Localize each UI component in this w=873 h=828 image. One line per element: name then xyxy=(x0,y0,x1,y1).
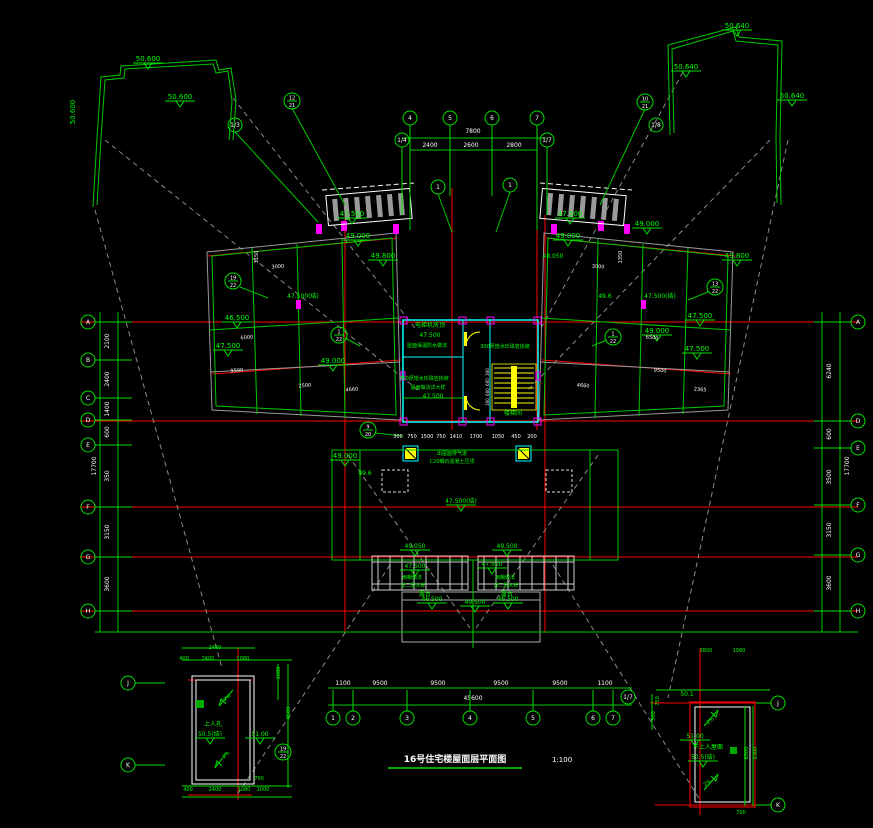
annotation-text: 300厚憎水珍珠岩找坡 xyxy=(480,343,530,350)
bubble-label: 9 xyxy=(366,425,369,431)
annotation-text: 3000 xyxy=(591,263,604,270)
annotation-text: 51.00 xyxy=(686,733,703,740)
annotation-text: 600 xyxy=(104,426,111,438)
annotation-text: 750 xyxy=(436,434,446,440)
bubble-label: 1/7 xyxy=(542,137,552,144)
annotation-text: 2800 xyxy=(700,648,713,654)
bubble-label: 1 xyxy=(611,332,614,338)
annotation-text: 2400 xyxy=(422,142,437,149)
annotation-text: 50.600 xyxy=(69,100,77,125)
annotation-text: 3150 xyxy=(104,524,111,539)
bubble-label: G xyxy=(86,554,91,561)
annotation-text: 50.5(结) xyxy=(198,730,222,738)
bubble-label: C xyxy=(86,395,90,402)
annotation-text: 3600 xyxy=(826,575,833,590)
annotation-text: 47.500 xyxy=(423,393,444,400)
bubble-label: B xyxy=(86,357,90,364)
annotation-text: 屋面保温防水做法 xyxy=(407,342,447,349)
annotation-text: 46.500 xyxy=(225,314,250,322)
annotation-text: 350 xyxy=(104,470,111,482)
annotation-text: 1050 xyxy=(492,434,505,440)
annotation-text: 49.6 xyxy=(598,293,612,300)
annotation-text: 500 xyxy=(651,711,657,721)
annotation-text: 1100 xyxy=(335,680,350,687)
annotation-text: 1500 xyxy=(421,434,434,440)
annotation-text: 1410 xyxy=(450,434,463,440)
annotation-text: 47.500 xyxy=(688,312,713,320)
annotation-text: 600 xyxy=(485,378,490,386)
annotation-text: 50.600 xyxy=(136,55,161,63)
bubble-label: 13 xyxy=(712,282,718,288)
annotation-text: 3500 xyxy=(826,469,833,484)
annotation-text: 3150 xyxy=(254,251,260,264)
annotation-text: 49.000 xyxy=(635,220,660,228)
bubble-label: 22 xyxy=(336,337,342,343)
annotation-text: 9500 xyxy=(372,680,387,687)
annotation-text: C20细石混凝土压顶 xyxy=(430,458,475,465)
annotation-text: 47.500 xyxy=(558,210,583,218)
annotation-text: 9500 xyxy=(493,680,508,687)
annotation-text: 49.800 xyxy=(371,252,396,260)
bubble-label: 5 xyxy=(531,715,535,722)
bubble-label: 22 xyxy=(712,289,718,295)
annotation-text: 楼梯间 xyxy=(504,409,522,417)
annotation-text: 2500 xyxy=(298,382,311,389)
bubble-label: J xyxy=(126,680,129,687)
annotation-text: 详二层大样 xyxy=(493,582,518,589)
bubble-label: 4 xyxy=(468,715,472,722)
annotation-text: 详二层大样 xyxy=(400,582,425,589)
bubble-label: 5 xyxy=(448,115,452,122)
drawing-title: 16号住宅楼屋面层平面图 xyxy=(404,753,507,765)
bubble-label: 21 xyxy=(289,103,295,109)
bubble-label: 7 xyxy=(535,115,539,122)
bubble-label: E xyxy=(856,445,860,452)
bubble-label: 22 xyxy=(280,754,286,760)
annotation-text: 17700 xyxy=(844,456,851,475)
bubble-label: D xyxy=(86,417,91,424)
canvas-background xyxy=(0,0,873,828)
annotation-text: 50.600 xyxy=(168,93,193,101)
annotation-text: 6500 xyxy=(645,334,658,341)
bubble-label: 1/4 xyxy=(397,137,407,144)
annotation-text: 50.640 xyxy=(780,92,805,100)
annotation-text: 1080 xyxy=(238,787,251,793)
bubble-label: 3 xyxy=(405,715,409,722)
annotation-text: 6000 xyxy=(240,334,253,341)
bubble-label: 1/8 xyxy=(651,122,661,129)
bubble-label: 6 xyxy=(490,115,494,122)
annotation-text: 49.000 xyxy=(321,357,346,365)
annotation-text: 2600 xyxy=(463,142,478,149)
bubble-label: E xyxy=(86,442,90,449)
annotation-text: 49.000 xyxy=(556,232,581,240)
annotation-text: 2800 xyxy=(506,142,521,149)
annotation-text: 47.500(结) xyxy=(644,292,676,300)
annotation-text: 4660 xyxy=(345,386,358,393)
bubble-label: H xyxy=(86,608,91,615)
annotation-text: 3600 xyxy=(104,576,111,591)
bubble-label: 19 xyxy=(280,747,286,753)
annotation-text: 上人孔 xyxy=(204,720,222,728)
annotation-text: 48.050 xyxy=(543,253,564,260)
annotation-text: 50.5(结) xyxy=(691,753,715,761)
annotation-text: 400 xyxy=(179,656,189,662)
annotation-text: 600 xyxy=(485,388,490,396)
annotation-text: 200 xyxy=(527,434,537,440)
annotation-text: 4660 xyxy=(576,382,589,389)
annotation-text: 2400 xyxy=(209,787,222,793)
bubble-label: F xyxy=(856,502,860,509)
annotation-text: 电梯机房顶 xyxy=(415,321,445,329)
annotation-text: 49.000 xyxy=(333,452,358,460)
annotation-text: 600 xyxy=(826,428,833,440)
annotation-text: 47.500 xyxy=(685,345,710,353)
cad-canvas[interactable]: 50.60050.60050.60050.64050.64050.64047.5… xyxy=(0,0,873,828)
annotation-text: 出屋面排气道 xyxy=(437,450,467,457)
annotation-text: 300 xyxy=(485,398,490,406)
annotation-text: 2400 xyxy=(209,645,222,651)
bubble-label: 19 xyxy=(230,276,236,282)
annotation-text: 750 xyxy=(655,696,661,706)
annotation-text: 9500 xyxy=(552,680,567,687)
annotation-text: 6240 xyxy=(826,363,833,378)
annotation-text: 300 xyxy=(393,434,403,440)
bubble-label: 1/3 xyxy=(230,122,240,129)
bubble-label: G xyxy=(856,552,861,559)
annotation-text: 2100 xyxy=(104,333,111,348)
annotation-text: 6300 xyxy=(753,747,759,760)
annotation-text: 雨棚做法 xyxy=(402,574,422,581)
annotation-text: 300厚憎水珍珠岩找坡 xyxy=(399,375,449,382)
annotation-text: 400 xyxy=(183,787,193,793)
annotation-text: 2365 xyxy=(693,386,706,393)
annotation-text: 4580 xyxy=(286,707,292,720)
bubble-label: 4 xyxy=(408,115,412,122)
bubble-label: 1/7 xyxy=(623,694,633,701)
bubble-label: D xyxy=(856,418,861,425)
annotation-text: 2400 xyxy=(104,371,111,386)
annotation-text: 9500 xyxy=(430,680,445,687)
annotation-text: 1080 xyxy=(276,667,282,680)
annotation-text: 2400 xyxy=(202,656,215,662)
annotation-text: 50.1 xyxy=(680,691,694,698)
bubble-label: 1 xyxy=(331,715,335,722)
annotation-text: 49.050 xyxy=(405,543,426,550)
annotation-text: 1100 xyxy=(597,680,612,687)
bubble-label: 22 xyxy=(610,339,616,345)
annotation-text: 47.500 xyxy=(340,210,365,218)
annotation-text: 7800 xyxy=(465,128,480,135)
annotation-text: 51.00 xyxy=(251,731,268,738)
annotation-text: 17700 xyxy=(91,456,98,475)
annotation-text: 47.500 xyxy=(482,561,503,568)
annotation-text: 700 xyxy=(736,810,746,816)
annotation-text: 47.500 xyxy=(216,342,241,350)
annotation-text: 45600 xyxy=(463,695,482,702)
annotation-text: 50.640 xyxy=(725,22,750,30)
annotation-text: 1000 xyxy=(257,787,270,793)
bubble-label: 1 xyxy=(508,182,512,189)
annotation-text: 47.500 xyxy=(420,332,441,339)
bubble-label: 10 xyxy=(642,97,648,103)
annotation-text: 露台 xyxy=(501,590,513,598)
annotation-text: 700 xyxy=(254,776,264,782)
annotation-text: 49.000 xyxy=(346,232,371,240)
bubble-label: H xyxy=(856,608,861,615)
bubble-label: 1 xyxy=(337,330,340,336)
annotation-text: 1080 xyxy=(733,648,746,654)
annotation-text: 3150 xyxy=(826,522,833,537)
bubble-label: 22 xyxy=(230,283,236,289)
bubble-label: 7 xyxy=(611,715,615,722)
annotation-text: 1700 xyxy=(470,434,483,440)
drawing-scale: 1:100 xyxy=(552,756,572,764)
annotation-text: 9500 xyxy=(653,367,666,374)
annotation-text: 6300 xyxy=(744,747,750,760)
annotation-text: 3000 xyxy=(271,263,284,270)
annotation-text: 47.500 xyxy=(405,563,426,570)
annotation-text: 450 xyxy=(511,434,521,440)
bubble-label: 12 xyxy=(289,96,295,102)
annotation-text: 47.500(结) xyxy=(287,292,319,300)
bubble-label: 20 xyxy=(365,432,371,438)
annotation-text: 1350 xyxy=(618,251,624,264)
annotation-text: 300 xyxy=(485,368,490,376)
annotation-text: 49.800 xyxy=(725,252,750,260)
annotation-text: 9500 xyxy=(230,367,243,374)
annotation-text: 露台 xyxy=(419,590,431,598)
bubble-label: J xyxy=(776,700,779,707)
annotation-text: 1080 xyxy=(237,656,250,662)
annotation-text: 不上人屋面 xyxy=(693,743,723,751)
bubble-label: 21 xyxy=(642,104,648,110)
bubble-label: 1 xyxy=(436,184,440,191)
bubble-label: 6 xyxy=(591,715,595,722)
bubble-label: F xyxy=(86,504,90,511)
annotation-text: 49.500 xyxy=(497,543,518,550)
annotation-text: 750 xyxy=(407,434,417,440)
annotation-text: 47.500(结) xyxy=(445,497,477,505)
bubble-label: 2 xyxy=(351,715,355,722)
annotation-text: 1400 xyxy=(104,401,111,416)
annotation-text: 雨棚做法 xyxy=(495,574,515,581)
annotation-text: 49.6 xyxy=(358,470,372,477)
annotation-text: 屋面做法详大样 xyxy=(410,384,445,391)
annotation-text: 49.500 xyxy=(465,599,486,606)
annotation-text: 50.640 xyxy=(674,63,699,71)
